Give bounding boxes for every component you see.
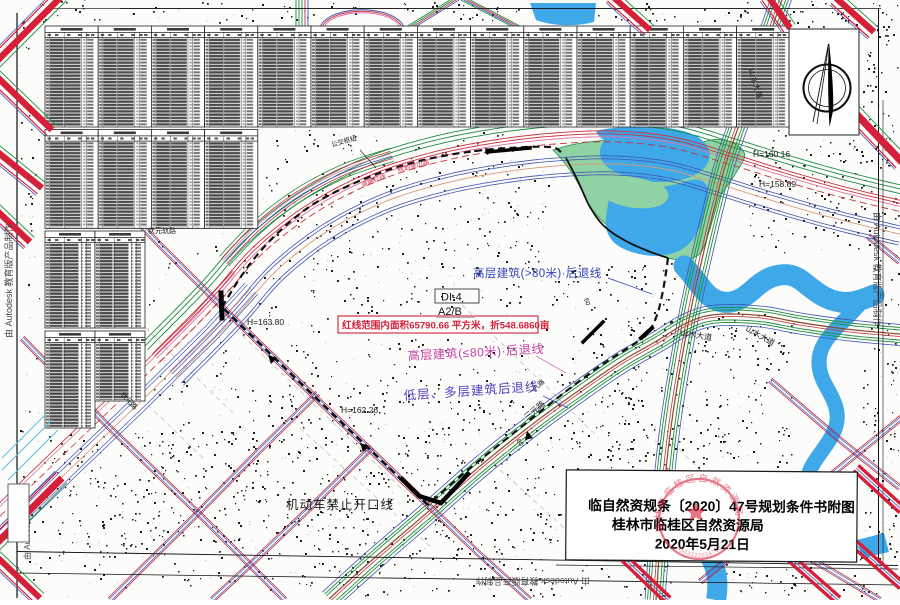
svg-text:H=162.26: H=162.26 — [341, 405, 378, 415]
svg-text:状元轨路: 状元轨路 — [148, 226, 176, 235]
svg-text:H=160.16: H=160.16 — [753, 149, 790, 159]
svg-text:H=163.80: H=163.80 — [247, 317, 284, 327]
svg-text:机动车禁止开口线: 机动车禁止开口线 — [286, 497, 394, 512]
svg-text:H=158.89: H=158.89 — [759, 179, 796, 189]
svg-text:由 Autodesk 教育版产品制作: 由 Autodesk 教育版产品制作 — [872, 212, 883, 327]
svg-text:由 Autodesk 教育版产品制作: 由 Autodesk 教育版产品制作 — [3, 223, 14, 338]
svg-text:红线范围内面积65790.66 平方米，折548.6860亩: 红线范围内面积65790.66 平方米，折548.6860亩 — [342, 320, 550, 332]
svg-text:临自然资规条〔2020〕47号规划条件书附图: 临自然资规条〔2020〕47号规划条件书附图 — [588, 497, 855, 515]
svg-text:高层建筑(>80米)·后退线: 高层建筑(>80米)·后退线 — [473, 266, 602, 280]
svg-text:DI-4: DI-4 — [441, 292, 462, 304]
svg-text:由 Autodesk 教育版产品制作: 由 Autodesk 教育版产品制作 — [475, 576, 590, 587]
svg-text:桂林市临桂区自然资源局: 桂林市临桂区自然资源局 — [611, 516, 764, 533]
